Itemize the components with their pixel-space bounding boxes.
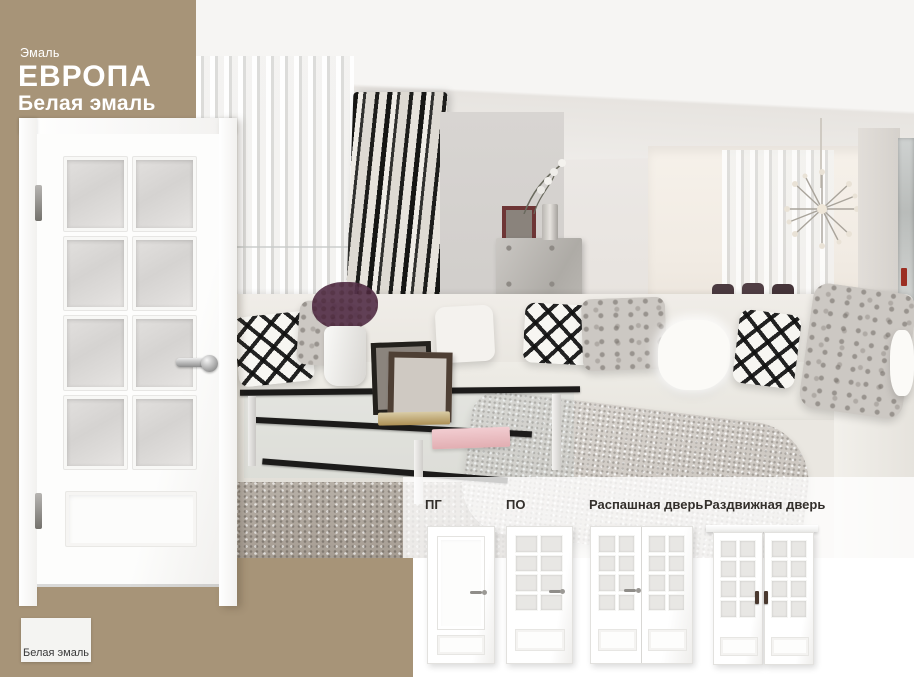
door-glass-grid xyxy=(64,157,196,469)
variant-thumb-razdvizhnaya[interactable] xyxy=(706,523,818,665)
glass-pane xyxy=(133,396,196,470)
thumb-panel-outline xyxy=(437,536,485,630)
door-casing-right xyxy=(219,118,237,606)
thumb-handle xyxy=(470,591,482,594)
variant-thumb-pg[interactable] xyxy=(427,526,495,664)
thumb-glass-grid xyxy=(720,540,756,618)
thumb-glass-grid xyxy=(771,540,807,618)
thumb-handle xyxy=(624,589,636,592)
thumb-handle-rosette xyxy=(636,588,641,593)
glass-pane xyxy=(64,396,127,470)
glass-pane xyxy=(64,157,127,231)
pillow-white-fur xyxy=(658,320,730,390)
pillow-lattice xyxy=(732,308,803,389)
pillow-gray-floral xyxy=(581,297,667,372)
glass-pane xyxy=(133,316,196,390)
thumb-bottom-panel xyxy=(648,629,687,651)
thumb-sliding-rail xyxy=(706,525,818,532)
door-casing-top xyxy=(19,118,237,134)
thumb-glass-grid xyxy=(648,535,685,611)
door-handle-rosette xyxy=(201,355,218,372)
color-swatch-label: Белая эмаль xyxy=(23,647,89,662)
red-candle xyxy=(901,268,907,286)
variant-thumb-raspashnaya[interactable] xyxy=(590,526,693,664)
thumb-handle-rosette xyxy=(482,590,487,595)
pink-book xyxy=(432,427,511,450)
orchid-plant xyxy=(504,152,574,214)
door-hinge-bottom xyxy=(35,493,42,529)
variant-label-raspashnaya: Распашная дверь xyxy=(589,497,703,512)
variant-label-razdvizhnaya: Раздвижная дверь xyxy=(704,497,825,512)
thumb-bottom-panel xyxy=(515,629,565,651)
main-door-preview xyxy=(19,118,237,606)
door-hinge-top xyxy=(35,185,42,221)
white-sculpted-vase xyxy=(324,326,366,386)
thumb-bottom-panel xyxy=(598,629,637,651)
glass-pane xyxy=(133,157,196,231)
thumb-pull-handle xyxy=(764,591,768,604)
thumb-glass-grid xyxy=(598,535,635,611)
variant-label-pg: ПГ xyxy=(425,497,442,512)
variant-thumb-po[interactable] xyxy=(506,526,573,664)
thumb-bottom-panel xyxy=(771,637,809,656)
thumb-glass-grid xyxy=(515,535,563,611)
thumb-leaf-divider xyxy=(641,527,642,663)
glass-pane xyxy=(64,316,127,390)
door-bottom-panel xyxy=(65,491,197,547)
gold-book xyxy=(378,411,450,425)
thumb-handle-rosette xyxy=(560,589,565,594)
thumb-bottom-panel xyxy=(720,637,758,656)
thumb-bottom-panel xyxy=(437,635,485,655)
door-bottom-shadow xyxy=(37,584,219,587)
color-swatch-white-enamel[interactable]: Белая эмаль xyxy=(21,618,91,662)
series-title: ЕВРОПА xyxy=(18,60,152,94)
silver-vase xyxy=(542,204,558,240)
interior-photo xyxy=(196,0,914,558)
variant-label-po: ПО xyxy=(506,497,525,512)
pillow-white-fur xyxy=(890,330,914,396)
thumb-pull-handle xyxy=(755,591,759,604)
coffee-table-leg xyxy=(552,394,561,470)
thumb-sliding-leaf xyxy=(764,532,814,665)
glass-pane xyxy=(64,237,127,311)
coffee-table-leg xyxy=(248,396,256,466)
sputnik-chandelier xyxy=(781,168,863,250)
series-subtitle: Белая эмаль xyxy=(18,92,156,116)
category-label: Эмаль xyxy=(20,46,60,60)
glass-pane xyxy=(133,237,196,311)
catalog-page: Эмаль ЕВРОПА Белая эмаль Белая xyxy=(0,0,914,677)
